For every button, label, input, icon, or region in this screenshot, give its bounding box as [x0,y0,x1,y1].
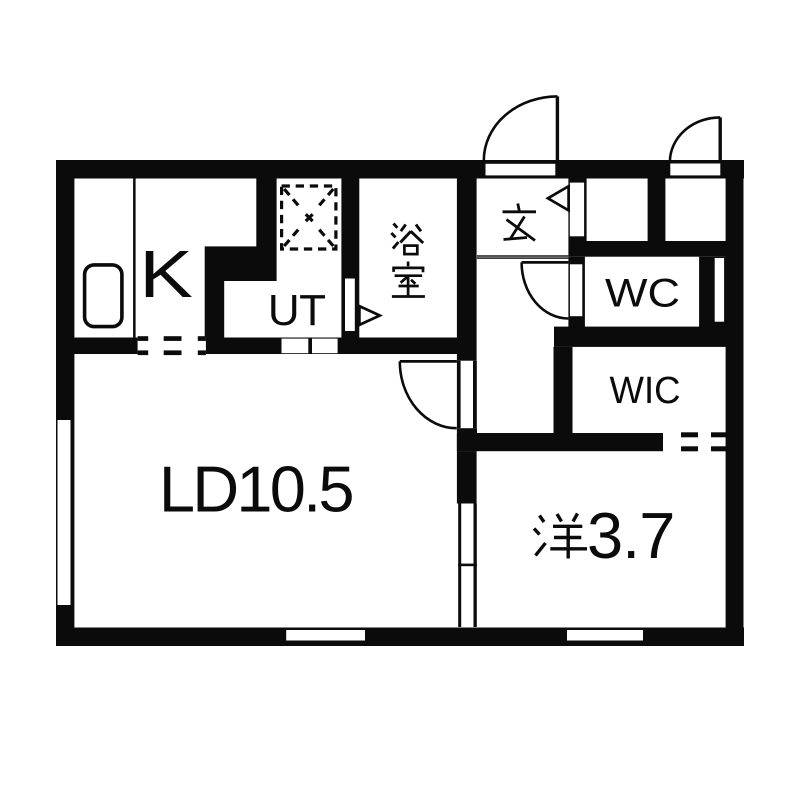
svg-text:UT: UT [268,286,326,335]
svg-text:K: K [139,236,193,311]
svg-text:WIC: WIC [610,370,681,412]
svg-text:LD10.5: LD10.5 [159,453,352,526]
svg-text:3.7: 3.7 [587,499,674,572]
svg-text:WC: WC [605,272,680,316]
